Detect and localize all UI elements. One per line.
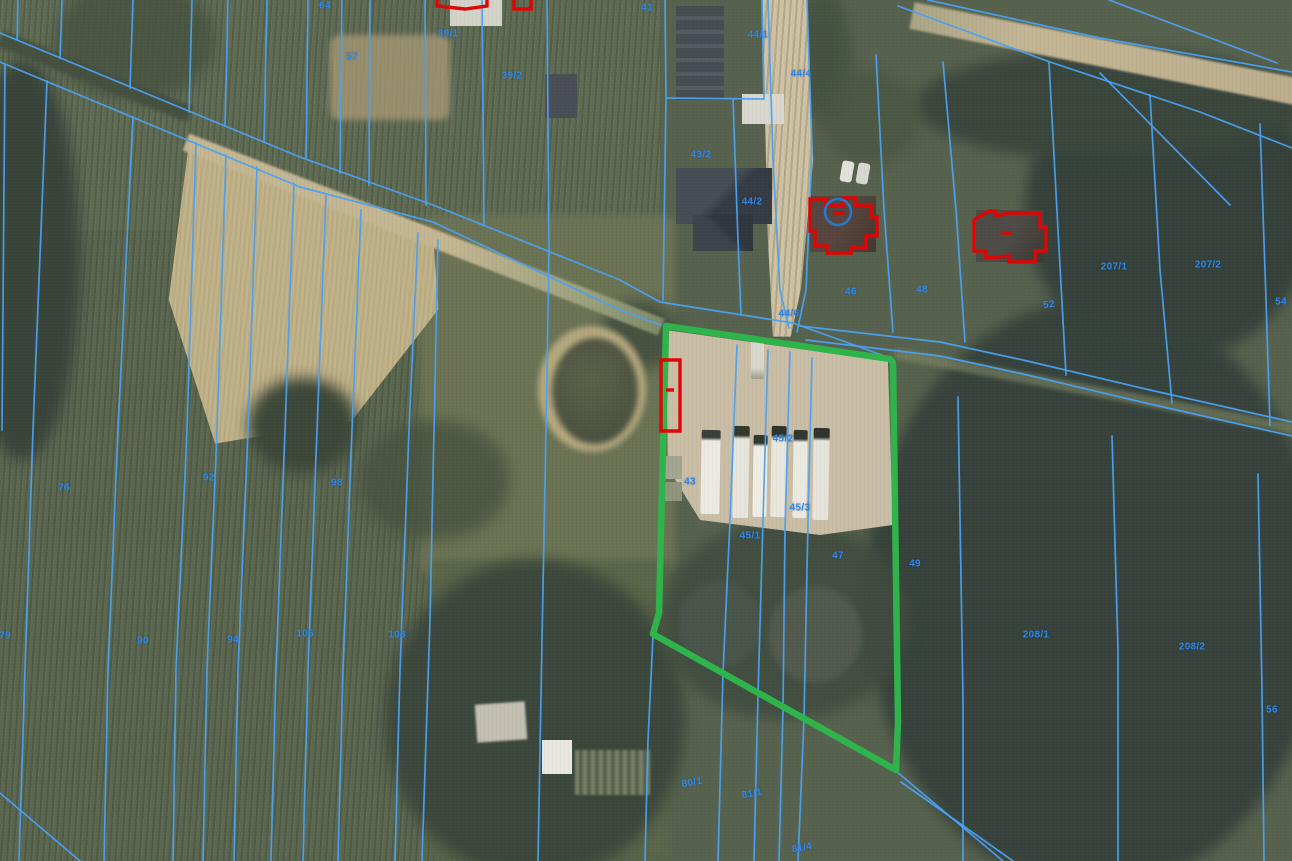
parcel-label: 98 (331, 478, 343, 489)
parcel-label: 81/4 (791, 841, 813, 855)
parcel-label: 43/2 (691, 150, 712, 161)
parcel-label: 105 (296, 629, 314, 640)
parcel-label: 208/2 (1179, 642, 1206, 653)
parcel-label: 49 (909, 559, 921, 570)
parcel-label: 94 (227, 635, 239, 646)
parcel-label: 76 (58, 483, 70, 494)
parcel-label: 44/6 (779, 309, 800, 320)
parcel-label: 41 (641, 3, 653, 14)
parcel-label: 45/3 (790, 503, 811, 514)
parcel-label: 45/2 (773, 434, 794, 445)
parcel-label: 39/2 (502, 71, 523, 82)
parcel-label: 79 (0, 631, 11, 642)
parcel-label: 48 (916, 285, 928, 296)
parcel-label: 45/1 (740, 531, 761, 542)
parcel-label: 92 (203, 473, 215, 484)
parcel-label: 44/1 (748, 30, 769, 41)
parcel-label: 207/2 (1195, 260, 1222, 271)
parcel-label: 80/1 (681, 776, 703, 790)
parcel-label: 57 (346, 52, 358, 63)
parcel-label: 81/1 (741, 787, 763, 801)
parcel-labels-layer: 64415739/139/244/144/443/244/244/6464852… (0, 0, 1292, 861)
parcel-label: 108 (388, 630, 406, 641)
parcel-label: 39/1 (438, 29, 459, 40)
parcel-label: 56 (1266, 705, 1278, 716)
parcel-label: 207/1 (1101, 262, 1128, 273)
parcel-label: 90 (137, 636, 149, 647)
parcel-label: 52 (1042, 299, 1055, 312)
map-canvas[interactable]: 64415739/139/244/144/443/244/244/6464852… (0, 0, 1292, 861)
parcel-label: 64 (319, 1, 331, 12)
parcel-label: 43 (684, 477, 696, 488)
parcel-label: 46 (845, 287, 857, 298)
parcel-label: 44/4 (791, 69, 812, 80)
parcel-label: 47 (832, 551, 844, 562)
parcel-label: 44/2 (742, 197, 763, 208)
parcel-label: 54 (1275, 297, 1287, 308)
parcel-label: 208/1 (1023, 630, 1050, 641)
